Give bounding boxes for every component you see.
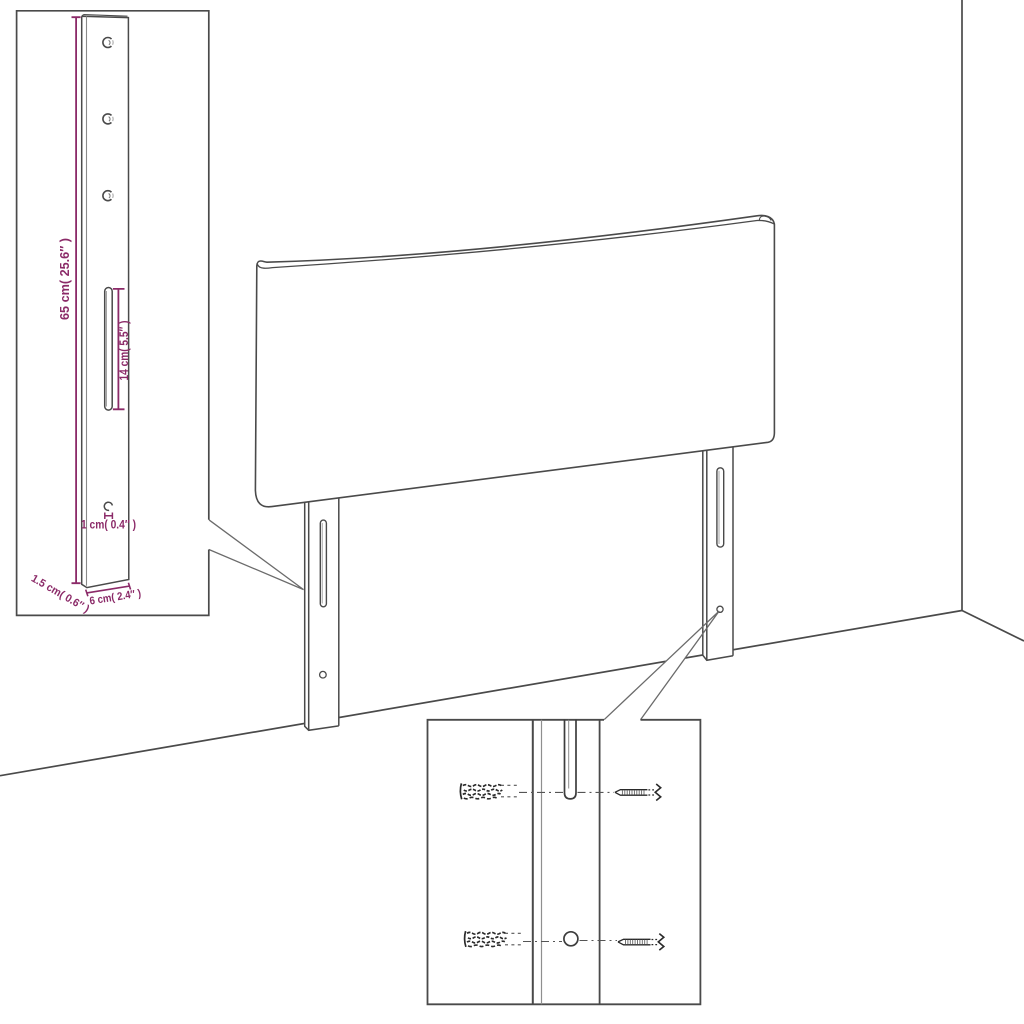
svg-text:65 cm( 25.6″ ): 65 cm( 25.6″ )	[57, 238, 72, 320]
svg-text:1 cm( 0.4″ ): 1 cm( 0.4″ )	[81, 518, 136, 532]
svg-text:14 cm( 5.5″ ): 14 cm( 5.5″ )	[117, 321, 131, 381]
